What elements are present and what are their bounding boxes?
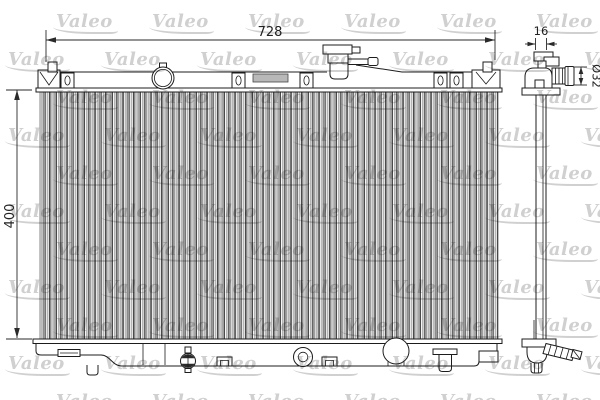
bottom-right-bracket [479, 351, 498, 362]
drawing-canvas: 728 400 16 Ø32 [0, 0, 600, 400]
dimension-overall-height: 400 [3, 90, 32, 339]
core-top-plate [36, 88, 502, 92]
overflow-tube [348, 59, 369, 65]
mounting-peg-top-left [48, 62, 57, 72]
dimension-pipe-diameter: Ø32 [574, 64, 600, 88]
side-filler-cap [522, 52, 574, 95]
inlet-pipe-circle [152, 63, 174, 89]
dimension-core-depth: 16 [525, 24, 557, 50]
tank-boss [253, 74, 288, 82]
top-tank [38, 45, 500, 89]
pipe-diameter-label: Ø32 [590, 64, 600, 88]
radiator-technical-drawing: 728 400 16 Ø32 ValeoVal [0, 0, 600, 400]
ring-port [294, 348, 313, 367]
side-inlet-pipe [552, 68, 565, 84]
bottom-bracket-2 [322, 357, 337, 366]
bottom-bracket-1 [217, 357, 232, 366]
side-view [522, 52, 582, 373]
side-outlet-pipe [543, 344, 575, 361]
dimension-overall-width: 728 [46, 25, 495, 62]
depth-dimension-label: 16 [534, 24, 549, 38]
filler-cap-assembly [323, 45, 378, 79]
side-core-column [536, 95, 546, 339]
width-dimension-label: 728 [258, 25, 283, 40]
height-dimension-label: 400 [3, 204, 18, 229]
side-bottom-assembly [522, 320, 582, 373]
core-bottom-plate [33, 339, 502, 344]
bottom-tab-right [433, 349, 457, 372]
radiator-core [40, 92, 498, 339]
mounting-peg-top-right [483, 62, 492, 72]
outlet-pipe-circle [383, 338, 409, 366]
bottom-tab-left [87, 365, 98, 375]
drain-valve [181, 347, 196, 373]
front-view [33, 45, 502, 375]
